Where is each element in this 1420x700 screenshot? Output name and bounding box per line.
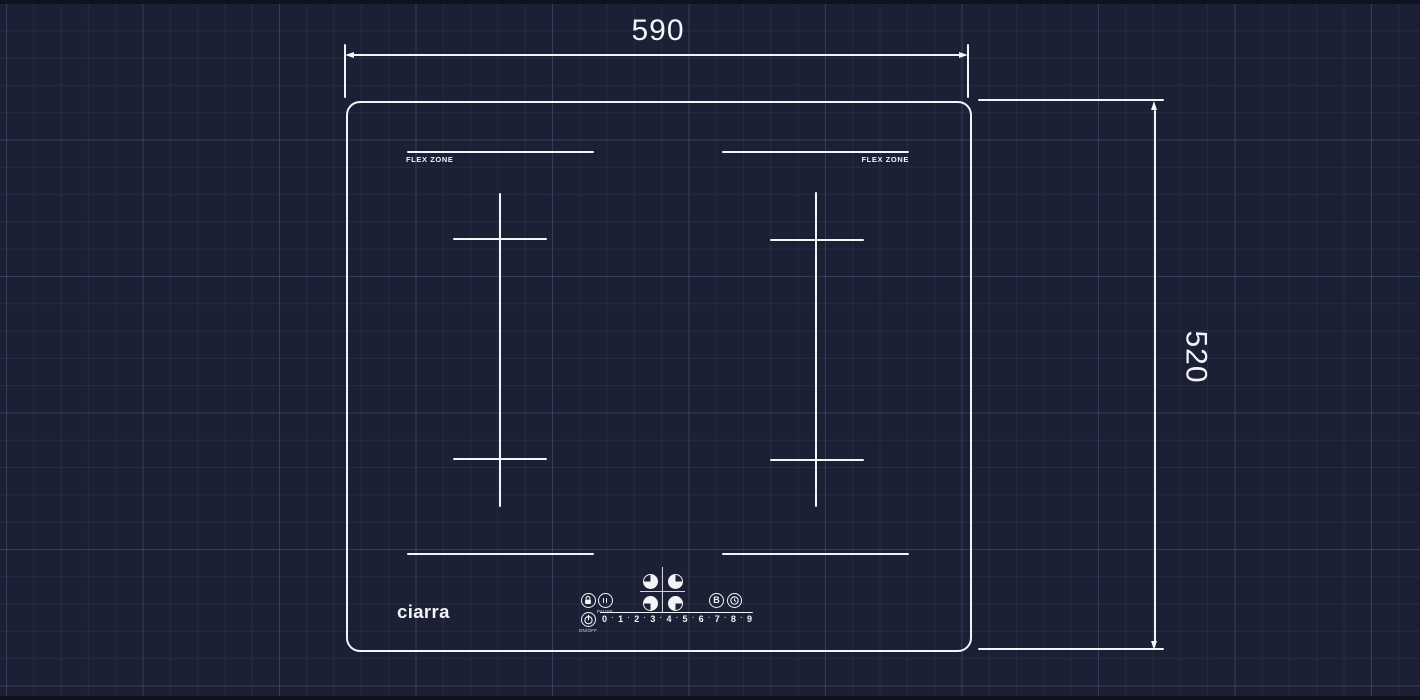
hob-outline [346,101,972,652]
boost-icon: B [709,593,724,608]
zone-line-bottom-left [407,553,594,555]
flex-zone-line-right [722,151,909,153]
power-level: 3 [650,614,655,624]
arrowhead-left-icon [345,52,354,58]
level-separator: · [628,615,630,622]
power-level: 8 [731,614,736,624]
level-separator: · [611,615,613,622]
zone-back-left-icon [643,574,658,589]
dimension-extension-line [978,648,1164,650]
level-separator: · [740,615,742,622]
hob-dimension-diagram: 590 520 FLEX ZONE FLEX ZONE PAUSE B [0,0,1420,700]
arrowhead-up-icon [1151,101,1157,110]
power-icon [581,612,596,627]
zone-marker-cross-right-top [770,239,864,241]
level-separator: · [708,615,710,622]
zone-group-divider-horizontal [640,591,685,592]
lock-icon [581,593,596,608]
level-separator: · [660,615,662,622]
zone-marker-cross-right-bottom [770,459,864,461]
level-separator: · [676,615,678,622]
brand-logo: ciarra [397,601,450,623]
height-dimension-label: 520 [1166,327,1226,387]
boost-letter: B [713,596,720,605]
frame-edge-top [0,0,1420,4]
height-dimension-text: 520 [1179,330,1213,383]
timer-clock-icon [727,593,742,608]
power-glyph [583,614,594,626]
flex-zone-line-left [407,151,594,153]
zone-group-divider-vertical [662,567,663,612]
width-dimension-line [353,54,963,56]
dimension-extension-line [978,99,1164,101]
power-level: 7 [715,614,720,624]
power-level: 0 [602,614,607,624]
zone-back-right-icon [668,574,683,589]
pause-glyph [603,598,608,604]
zone-marker-cross-left-top [453,238,547,240]
level-separator: · [644,615,646,622]
zone-front-right-icon [668,596,683,611]
height-dimension-line [1154,110,1156,642]
frame-edge-bottom [0,696,1420,700]
power-level: 6 [699,614,704,624]
power-level: 4 [666,614,671,624]
zone-line-bottom-right [722,553,909,555]
lock-glyph [583,595,593,606]
power-level: 2 [634,614,639,624]
flex-zone-label-left: FLEX ZONE [406,155,526,164]
arrowhead-down-icon [1151,641,1157,650]
pause-icon [598,593,613,608]
power-level: 5 [683,614,688,624]
power-level: 9 [747,614,752,624]
zone-front-left-icon [643,596,658,611]
clock-glyph [729,595,740,606]
level-separator: · [692,615,694,622]
power-label: ON/OFF [577,629,599,634]
flex-zone-label-right: FLEX ZONE [789,155,909,164]
arrowhead-right-icon [959,52,968,58]
level-separator: · [724,615,726,622]
width-dimension-label: 590 [598,14,718,48]
zone-marker-cross-left-bottom [453,458,547,460]
power-level: 1 [618,614,623,624]
power-level-scale: 0·1·2·3·4·5·6·7·8·9 [602,614,752,624]
